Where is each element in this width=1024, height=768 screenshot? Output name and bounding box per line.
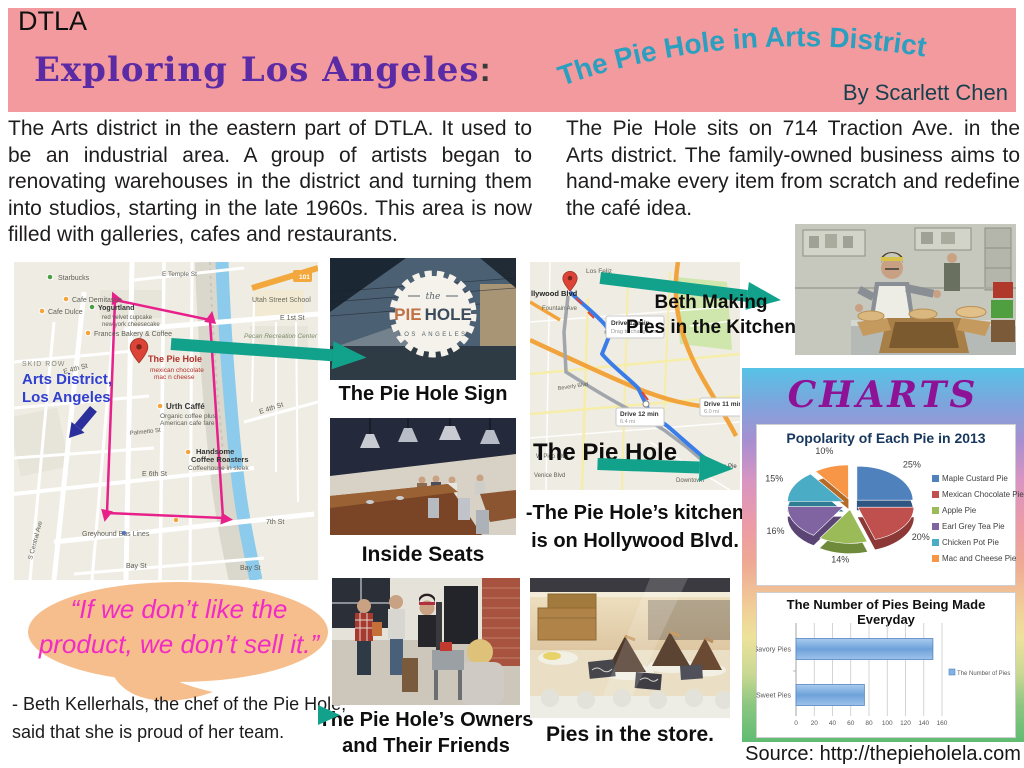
bar-legend-swatch: [949, 669, 955, 675]
map-label: Los Feliz: [586, 268, 612, 275]
caption-note-line1: -The Pie Hole’s kitchen: [522, 499, 748, 527]
map-label: Downtown: [676, 478, 704, 484]
byline: By Scarlett Chen: [843, 80, 1008, 106]
legend-label: Maple Custard Pie: [942, 474, 1008, 483]
x-tick-label: 100: [882, 720, 893, 727]
legend-swatch: [932, 475, 939, 482]
map-label: Utah Street School: [252, 297, 311, 304]
legend-swatch: [932, 523, 939, 530]
caption-sign: The Pie Hole Sign: [330, 383, 516, 406]
map-label: Organic coffee plus: [160, 413, 217, 420]
map-label: American cafe fare: [160, 420, 215, 427]
bar-savory-pies: [796, 639, 933, 660]
map-label: red velvet cupcake: [102, 315, 153, 321]
map-label: Greyhound Bus Lines: [82, 531, 150, 538]
poster-page: DTLA Exploring Los Angeles: The Pie Hole…: [0, 0, 1024, 768]
svg-text:Drive 12 min: Drive 12 min: [620, 411, 659, 418]
map-label: mexican chocolate: [150, 367, 204, 374]
caption-kitchen-note: -The Pie Hole’s kitchen is on Hollywood …: [522, 499, 748, 555]
svg-text:6.0 mi: 6.0 mi: [704, 409, 719, 415]
legend-swatch: [932, 491, 939, 498]
bar-legend-label: The Number of Pies: [957, 671, 1010, 677]
source-link[interactable]: Source: http://thepieholela.com: [742, 743, 1024, 766]
map-label: Los Angeles: [22, 389, 111, 406]
pie-percent-label: 20%: [912, 532, 930, 542]
map-label: Venice Blvd: [534, 473, 565, 479]
legend-label: Earl Grey Tea Pie: [942, 522, 1005, 531]
map-label: 101: [299, 274, 310, 281]
x-tick-label: 0: [794, 720, 798, 727]
map-label: The Pie Hole: [148, 354, 202, 364]
pie-legend-item: Earl Grey Tea Pie: [932, 522, 1016, 531]
x-tick-label: 60: [847, 720, 855, 727]
case-top: [530, 578, 730, 592]
charts-heading: CHARTS: [742, 374, 1024, 416]
map-label: Cafe Demitasse: [72, 297, 122, 304]
map-label: E 1st St: [280, 315, 305, 322]
map-label: Pecan Recreation Center: [244, 333, 318, 340]
map-label: Bay St: [126, 563, 147, 570]
map-label: Urth Caffé: [166, 402, 205, 411]
bar-chart: 020406080100120140160Savory PiesSweet Pi…: [756, 612, 1016, 738]
intro-paragraph-right: The Pie Hole sits on 714 Traction Ave. i…: [566, 116, 1020, 222]
photo-pies-store: [530, 578, 730, 718]
svg-text:6.4 mi: 6.4 mi: [620, 419, 635, 425]
caption-owners-line2: and Their Friends: [310, 733, 542, 759]
photo-inside-seats: [330, 418, 516, 535]
svg-text:Drive 11 min: Drive 11 min: [704, 401, 740, 408]
map-label: mac n cheese: [154, 374, 195, 381]
map-label: new york cheesecake: [102, 322, 160, 328]
pie-legend-item: Maple Custard Pie: [932, 474, 1016, 483]
map-label: Coffee Roasters: [191, 455, 249, 464]
map-label: E Temple St: [162, 271, 197, 278]
caption-pies: Pies in the store.: [530, 723, 730, 747]
caption-owners: The Pie Hole’s Owners and Their Friends: [310, 707, 542, 759]
header-kicker: DTLA: [18, 6, 87, 37]
arts-district-map: StarbucksCafe DemitasseCafe DulceYogurtl…: [14, 262, 318, 580]
x-tick-label: 120: [900, 720, 911, 727]
map-label: Arts District,: [22, 371, 112, 388]
caption-beth: Beth Making Pies in the Kitchen: [620, 290, 802, 340]
drive-box-3: Drive 11 min 6.0 mi: [700, 398, 740, 416]
destination-marker: [707, 461, 714, 468]
caption-beth-line1: Beth Making: [620, 290, 802, 315]
building-reflection: [480, 284, 516, 348]
category-label: Savory Pies: [756, 647, 791, 654]
drive-box-2: Drive 12 min 6.4 mi: [616, 408, 664, 426]
quote-line2: product, we don’t sell it.”: [28, 627, 330, 662]
caption-note-line2: is on Hollywood Blvd.: [522, 527, 748, 555]
badge-name: PIEHOLE: [394, 305, 472, 324]
pie-slice: [857, 466, 913, 500]
pie-percent-label: 15%: [765, 474, 783, 484]
caption-inside: Inside Seats: [330, 543, 516, 567]
door: [444, 586, 478, 644]
page-title-colon: :: [479, 51, 491, 89]
pie-percent-label: 25%: [903, 460, 921, 470]
legend-swatch: [932, 555, 939, 562]
x-tick-label: 40: [829, 720, 837, 727]
photo-owners: [332, 578, 520, 705]
legend-label: Apple Pie: [942, 506, 976, 515]
pie-legend-item: Chicken Pot Pie: [932, 538, 1016, 547]
x-tick-label: 20: [811, 720, 819, 727]
map-label: Coffeehouse in sleek: [188, 465, 249, 472]
bar-sweet-pies: [796, 685, 864, 706]
map-label: Bay St: [240, 565, 261, 572]
pie-chart-legend: Maple Custard PieMexican Chocolate PieAp…: [932, 474, 1016, 570]
map-label: Fountain Ave: [542, 306, 578, 312]
quote-line1: “If we don’t like the: [28, 592, 330, 627]
legend-label: Mexican Chocolate Pie: [942, 490, 1024, 499]
pie-legend-item: Mexican Chocolate Pie: [932, 490, 1016, 499]
badge-the: the: [426, 292, 441, 302]
map-label: Frances Bakery & Coffee: [94, 331, 172, 338]
map-label: Cafe Dulce: [48, 309, 83, 316]
bins: [991, 282, 1015, 342]
page-title: Exploring Los Angeles:: [34, 50, 492, 90]
map-label: Yogurtland: [98, 305, 134, 312]
page-title-text: Exploring Los Angeles: [34, 50, 479, 90]
pie-percent-label: 16%: [766, 526, 784, 536]
map-label: The Pie: [716, 464, 737, 470]
map-overlay-title: The Pie Hole: [533, 439, 677, 466]
pie-chart-title: Popolarity of Each Pie in 2013: [756, 430, 1016, 446]
waypoint: [643, 401, 649, 407]
badge-city: LOS ANGELES: [398, 332, 467, 338]
map-label: llywood Blvd: [531, 289, 578, 298]
legend-label: Chicken Pot Pie: [942, 538, 999, 547]
legend-swatch: [932, 507, 939, 514]
map-label: SKID ROW: [22, 361, 65, 368]
caption-beth-line2: Pies in the Kitchen: [620, 315, 802, 340]
legend-swatch: [932, 539, 939, 546]
map-label: Starbucks: [58, 275, 90, 282]
pie-percent-label: 10%: [815, 446, 833, 456]
photo-pie-hole-sign: the PIEHOLE LOS ANGELES: [330, 258, 516, 380]
x-tick-label: 80: [865, 720, 873, 727]
x-tick-label: 140: [918, 720, 929, 727]
photo-kitchen: [795, 224, 1016, 355]
caption-owners-line1: The Pie Hole’s Owners: [310, 707, 542, 733]
legend-label: Mac and Cheese Pie: [942, 554, 1016, 563]
map-label: 7th St: [266, 519, 284, 526]
pie-legend-item: Apple Pie: [932, 506, 1016, 515]
quote: “If we don’t like the product, we don’t …: [28, 592, 330, 662]
x-tick-label: 160: [937, 720, 948, 727]
pie-legend-item: Mac and Cheese Pie: [932, 554, 1016, 563]
pie-percent-label: 14%: [831, 554, 849, 564]
intro-paragraph-left: The Arts district in the eastern part of…: [8, 116, 532, 249]
category-label: Sweet Pies: [756, 693, 791, 700]
map-label: E 6th St: [142, 471, 167, 478]
